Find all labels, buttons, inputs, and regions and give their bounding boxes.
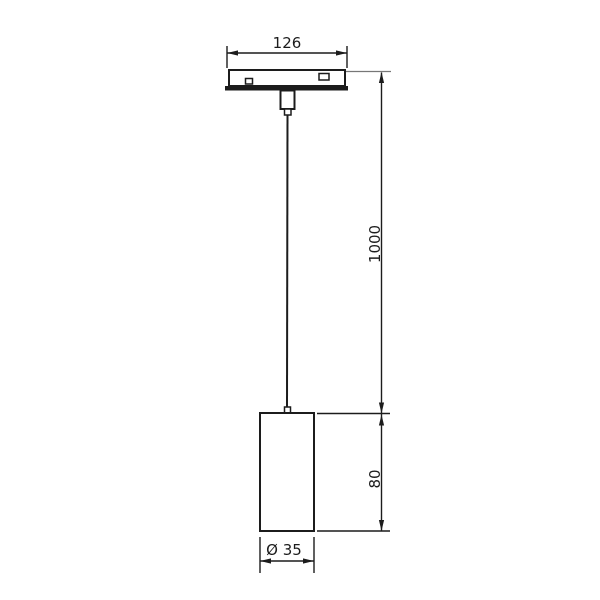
suspension-cable — [285, 115, 291, 414]
track-clip-left — [246, 79, 253, 85]
lamp-shade — [260, 413, 314, 531]
track-width-dimension: 126 — [227, 34, 347, 68]
track-width-label: 126 — [273, 34, 302, 52]
suspension-stem — [281, 91, 295, 110]
lamp-body — [260, 413, 314, 531]
arrow-up-icon — [379, 72, 384, 83]
drawing-canvas: 126 1000 — [0, 0, 600, 600]
arrow-down-icon — [379, 520, 384, 531]
cable-grip-top — [285, 109, 292, 115]
cable-length-dimension: 1000 — [346, 72, 391, 414]
arrow-left-icon — [260, 558, 271, 563]
arrow-right-icon — [336, 50, 347, 55]
lamp-diameter-label: Ø 35 — [266, 541, 302, 559]
lamp-height-label: 80 — [366, 469, 384, 488]
mounting-track — [225, 70, 348, 115]
lamp-height-dimension: 80 — [317, 414, 390, 532]
arrow-right-icon — [303, 558, 314, 563]
track-clip-right — [319, 74, 329, 81]
cable-line — [287, 115, 288, 407]
arrow-left-icon — [227, 50, 238, 55]
pendant-lamp-dimension-drawing: 126 1000 — [0, 0, 600, 600]
arrow-down-icon — [379, 403, 384, 414]
lamp-diameter-dimension: Ø 35 — [260, 537, 314, 573]
cable-length-label: 1000 — [366, 225, 384, 263]
arrow-up-icon — [379, 415, 384, 426]
